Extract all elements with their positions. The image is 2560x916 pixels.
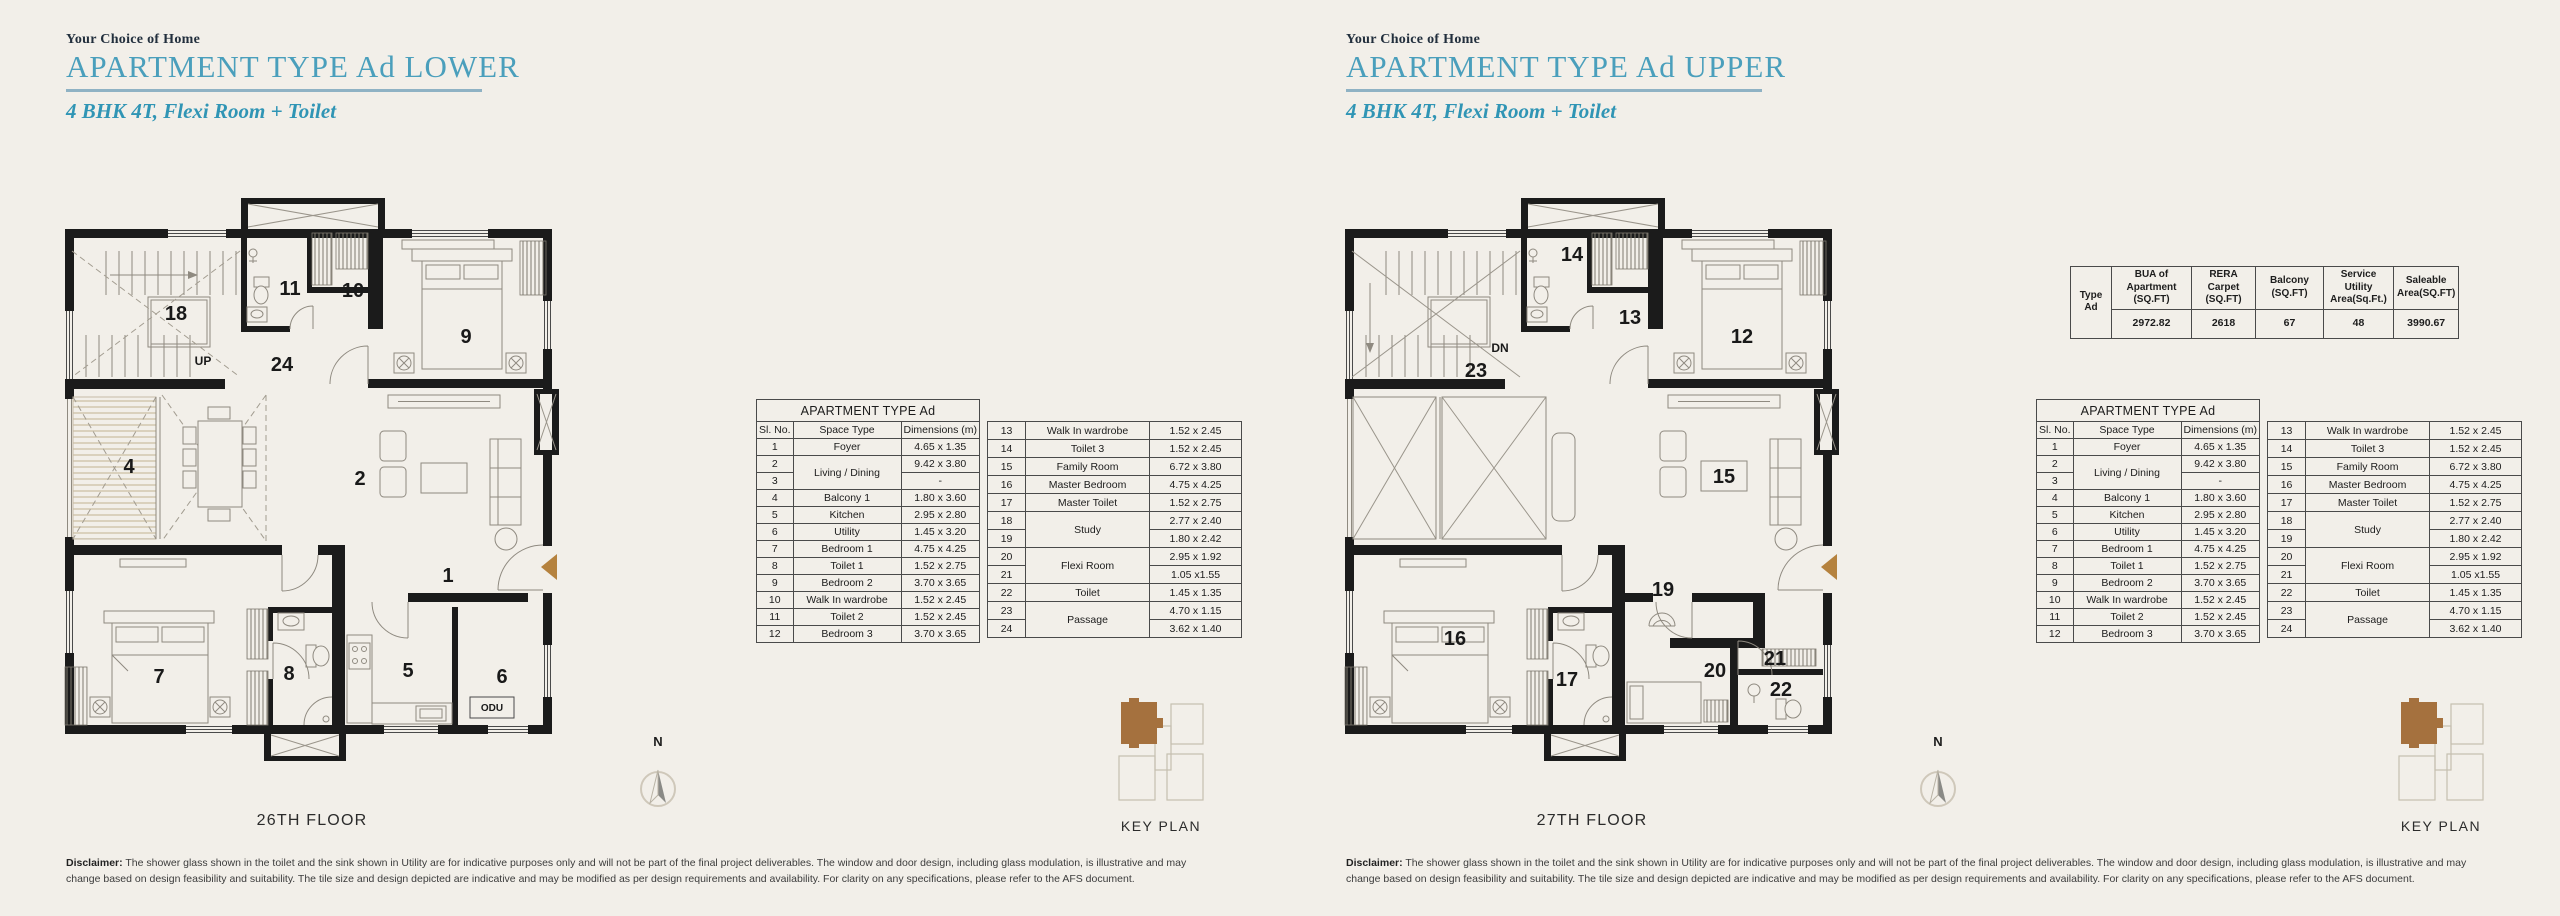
disclaimer-label: Disclaimer: [66, 857, 123, 869]
room-label-12: 12 [1731, 326, 1753, 348]
stair-direction [72, 251, 240, 377]
room-label-8: 8 [283, 663, 294, 685]
table-row: 17Master Toilet1.52 x 2.75 [988, 494, 1242, 512]
room-label-10: 10 [342, 280, 364, 302]
dimension-table-left: APARTMENT TYPE AdSl. No.Space TypeDimens… [756, 399, 980, 643]
dimension-table-lower: APARTMENT TYPE AdSl. No.Space TypeDimens… [756, 399, 1242, 643]
odu-label: ODU [481, 703, 503, 714]
room-label-22: 22 [1770, 679, 1792, 701]
subtitle-text: 4 BHK 4T, Flexi Room + Toilet [66, 99, 520, 124]
room-label-13: 13 [1619, 307, 1641, 329]
table-row: 17Master Toilet1.52 x 2.75 [2268, 494, 2522, 512]
subtitle-text: 4 BHK 4T, Flexi Room + Toilet [1346, 99, 1786, 124]
table-row: 5Kitchen2.95 x 2.80 [757, 507, 980, 524]
balcony-and-dining [73, 395, 266, 541]
table-row: 16Master Bedroom4.75 x 4.25 [988, 476, 1242, 494]
stair-direction-label: DN [1491, 341, 1508, 355]
room-label-5: 5 [402, 660, 413, 682]
floor-plan-lower-svg: 18 11 10 9 UP 24 4 2 1 7 8 5 6 ODU [50, 183, 610, 783]
eyebrow-text: Your Choice of Home [66, 32, 520, 48]
table-row: 9Bedroom 23.70 x 3.65 [757, 575, 980, 592]
disclaimer-upper: Disclaimer: The shower glass shown in th… [1346, 856, 2496, 888]
panel-apartment-lower: Your Choice of Home APARTMENT TYPE Ad LO… [0, 0, 1280, 916]
table-row: 10Walk In wardrobe1.52 x 2.45 [2037, 592, 2260, 609]
study-flexi-toilet [1625, 593, 1823, 725]
table-row: 9Bedroom 23.70 x 3.65 [2037, 575, 2260, 592]
north-label: N [1908, 734, 1968, 749]
north-label: N [628, 734, 688, 749]
room-label-14: 14 [1561, 244, 1584, 266]
disclaimer-text: The shower glass shown in the toilet and… [66, 857, 1186, 885]
table-row: 23Passage4.70 x 1.15 [2268, 602, 2522, 620]
page-title: APARTMENT TYPE Ad UPPER [1346, 49, 1786, 85]
stair-direction [1352, 251, 1520, 377]
room-label-21: 21 [1764, 648, 1786, 670]
table-row: 4Balcony 11.80 x 3.60 [2037, 490, 2260, 507]
table-row: 8Toilet 11.52 x 2.75 [757, 558, 980, 575]
key-plan-icon [2389, 692, 2493, 810]
eyebrow-text: Your Choice of Home [1346, 32, 1786, 48]
room-label-4: 4 [123, 456, 135, 478]
table-row: 22Toilet1.45 x 1.35 [2268, 584, 2522, 602]
page-title: APARTMENT TYPE Ad LOWER [66, 49, 520, 85]
page: { "page": { "background": "#f2efe9", "ac… [0, 0, 2560, 916]
dimension-table-upper: APARTMENT TYPE AdSl. No.Space TypeDimens… [2036, 399, 2522, 643]
room-label-23: 23 [1465, 360, 1487, 382]
table-row: 18Study2.77 x 2.40 [988, 512, 1242, 530]
room-label-19: 19 [1652, 579, 1674, 601]
table-row: 13Walk In wardrobe1.52 x 2.45 [2268, 422, 2522, 440]
panel-apartment-upper: Your Choice of Home APARTMENT TYPE Ad UP… [1280, 0, 2560, 916]
north-indicator: N [628, 734, 688, 814]
dimension-table-right: 13Walk In wardrobe1.52 x 2.4514Toilet 31… [2267, 421, 2522, 638]
table-row: 15Family Room6.72 x 3.80 [2268, 458, 2522, 476]
table-row: 11Toilet 21.52 x 2.45 [757, 609, 980, 626]
compass-icon [1910, 749, 1966, 809]
table-row: 20Flexi Room2.95 x 1.92 [988, 548, 1242, 566]
key-plan-lower: KEY PLAN [1094, 692, 1228, 834]
room-label-18: 18 [165, 303, 187, 325]
room-label-17: 17 [1556, 669, 1578, 691]
summary-table: TypeAdBUA of Apartment (SQ.FT)RERA Carpe… [2070, 266, 2459, 339]
title-underline [66, 89, 482, 92]
table-row: 6Utility1.45 x 3.20 [757, 524, 980, 541]
compass-icon [630, 749, 686, 809]
table-row: 11Toilet 21.52 x 2.45 [2037, 609, 2260, 626]
area-summary-table: TypeAdBUA of Apartment (SQ.FT)RERA Carpe… [2070, 266, 2459, 339]
table-row: 7Bedroom 14.75 x 4.25 [2037, 541, 2260, 558]
table-row: 20Flexi Room2.95 x 1.92 [2268, 548, 2522, 566]
table-row: 14Toilet 31.52 x 2.45 [988, 440, 1242, 458]
room-label-11: 11 [279, 278, 300, 300]
dimension-table-right: 13Walk In wardrobe1.52 x 2.4514Toilet 31… [987, 421, 1242, 638]
table-row: 1Foyer4.65 x 1.35 [757, 439, 980, 456]
table-row: 6Utility1.45 x 3.20 [2037, 524, 2260, 541]
key-plan-icon [1109, 692, 1213, 810]
table-row: 12Bedroom 33.70 x 3.65 [2037, 626, 2260, 643]
header-upper: Your Choice of Home APARTMENT TYPE Ad UP… [1346, 32, 1786, 124]
disclaimer-lower: Disclaimer: The shower glass shown in th… [66, 856, 1216, 888]
stair-direction-label: UP [195, 354, 212, 368]
table-row: 22Toilet1.45 x 1.35 [988, 584, 1242, 602]
table-row: 18Study2.77 x 2.40 [2268, 512, 2522, 530]
room-label-6: 6 [496, 666, 507, 688]
void-panels [1353, 397, 1575, 539]
room-label-2: 2 [354, 468, 365, 490]
header-lower: Your Choice of Home APARTMENT TYPE Ad LO… [66, 32, 520, 124]
table-row: 13Walk In wardrobe1.52 x 2.45 [988, 422, 1242, 440]
table-row: 14Toilet 31.52 x 2.45 [2268, 440, 2522, 458]
key-plan-label: KEY PLAN [1094, 818, 1228, 834]
room-label-24: 24 [271, 354, 294, 376]
table-row: 5Kitchen2.95 x 2.80 [2037, 507, 2260, 524]
key-plan-label: KEY PLAN [2374, 818, 2508, 834]
table-row: 12Bedroom 33.70 x 3.65 [757, 626, 980, 643]
table-row: 2Living / Dining9.42 x 3.80 [2037, 456, 2260, 473]
room-label-9: 9 [460, 326, 471, 348]
disclaimer-text: The shower glass shown in the toilet and… [1346, 857, 2466, 885]
table-row: 4Balcony 11.80 x 3.60 [757, 490, 980, 507]
table-row: 7Bedroom 14.75 x 4.25 [757, 541, 980, 558]
table-row: 15Family Room6.72 x 3.80 [988, 458, 1242, 476]
floor-label-upper: 27TH FLOOR [1462, 812, 1722, 830]
table-row: 16Master Bedroom4.75 x 4.25 [2268, 476, 2522, 494]
table-row: 8Toilet 11.52 x 2.75 [2037, 558, 2260, 575]
table-row: 10Walk In wardrobe1.52 x 2.45 [757, 592, 980, 609]
room-label-16: 16 [1444, 628, 1466, 650]
room-label-7: 7 [153, 666, 164, 688]
floor-plan-shell [1345, 198, 1839, 761]
title-underline [1346, 89, 1762, 92]
table-row: 23Passage4.70 x 1.15 [988, 602, 1242, 620]
floor-plan-lower: 18 11 10 9 UP 24 4 2 1 7 8 5 6 ODU [50, 183, 610, 783]
disclaimer-label: Disclaimer: [1346, 857, 1403, 869]
dimension-table-left: APARTMENT TYPE AdSl. No.Space TypeDimens… [2036, 399, 2260, 643]
table-row: 2Living / Dining9.42 x 3.80 [757, 456, 980, 473]
room-label-15: 15 [1713, 466, 1735, 488]
floor-plan-upper-svg: 14 13 12 DN 23 15 19 16 17 20 21 22 [1330, 183, 1890, 783]
floor-label-lower: 26TH FLOOR [182, 812, 442, 830]
key-plan-upper: KEY PLAN [2374, 692, 2508, 834]
room-label-1: 1 [442, 565, 453, 587]
floor-plan-upper: 14 13 12 DN 23 15 19 16 17 20 21 22 [1330, 183, 1890, 783]
coffee-table [421, 463, 467, 493]
north-indicator: N [1908, 734, 1968, 814]
table-row: 1Foyer4.65 x 1.35 [2037, 439, 2260, 456]
room-label-20: 20 [1704, 660, 1726, 682]
